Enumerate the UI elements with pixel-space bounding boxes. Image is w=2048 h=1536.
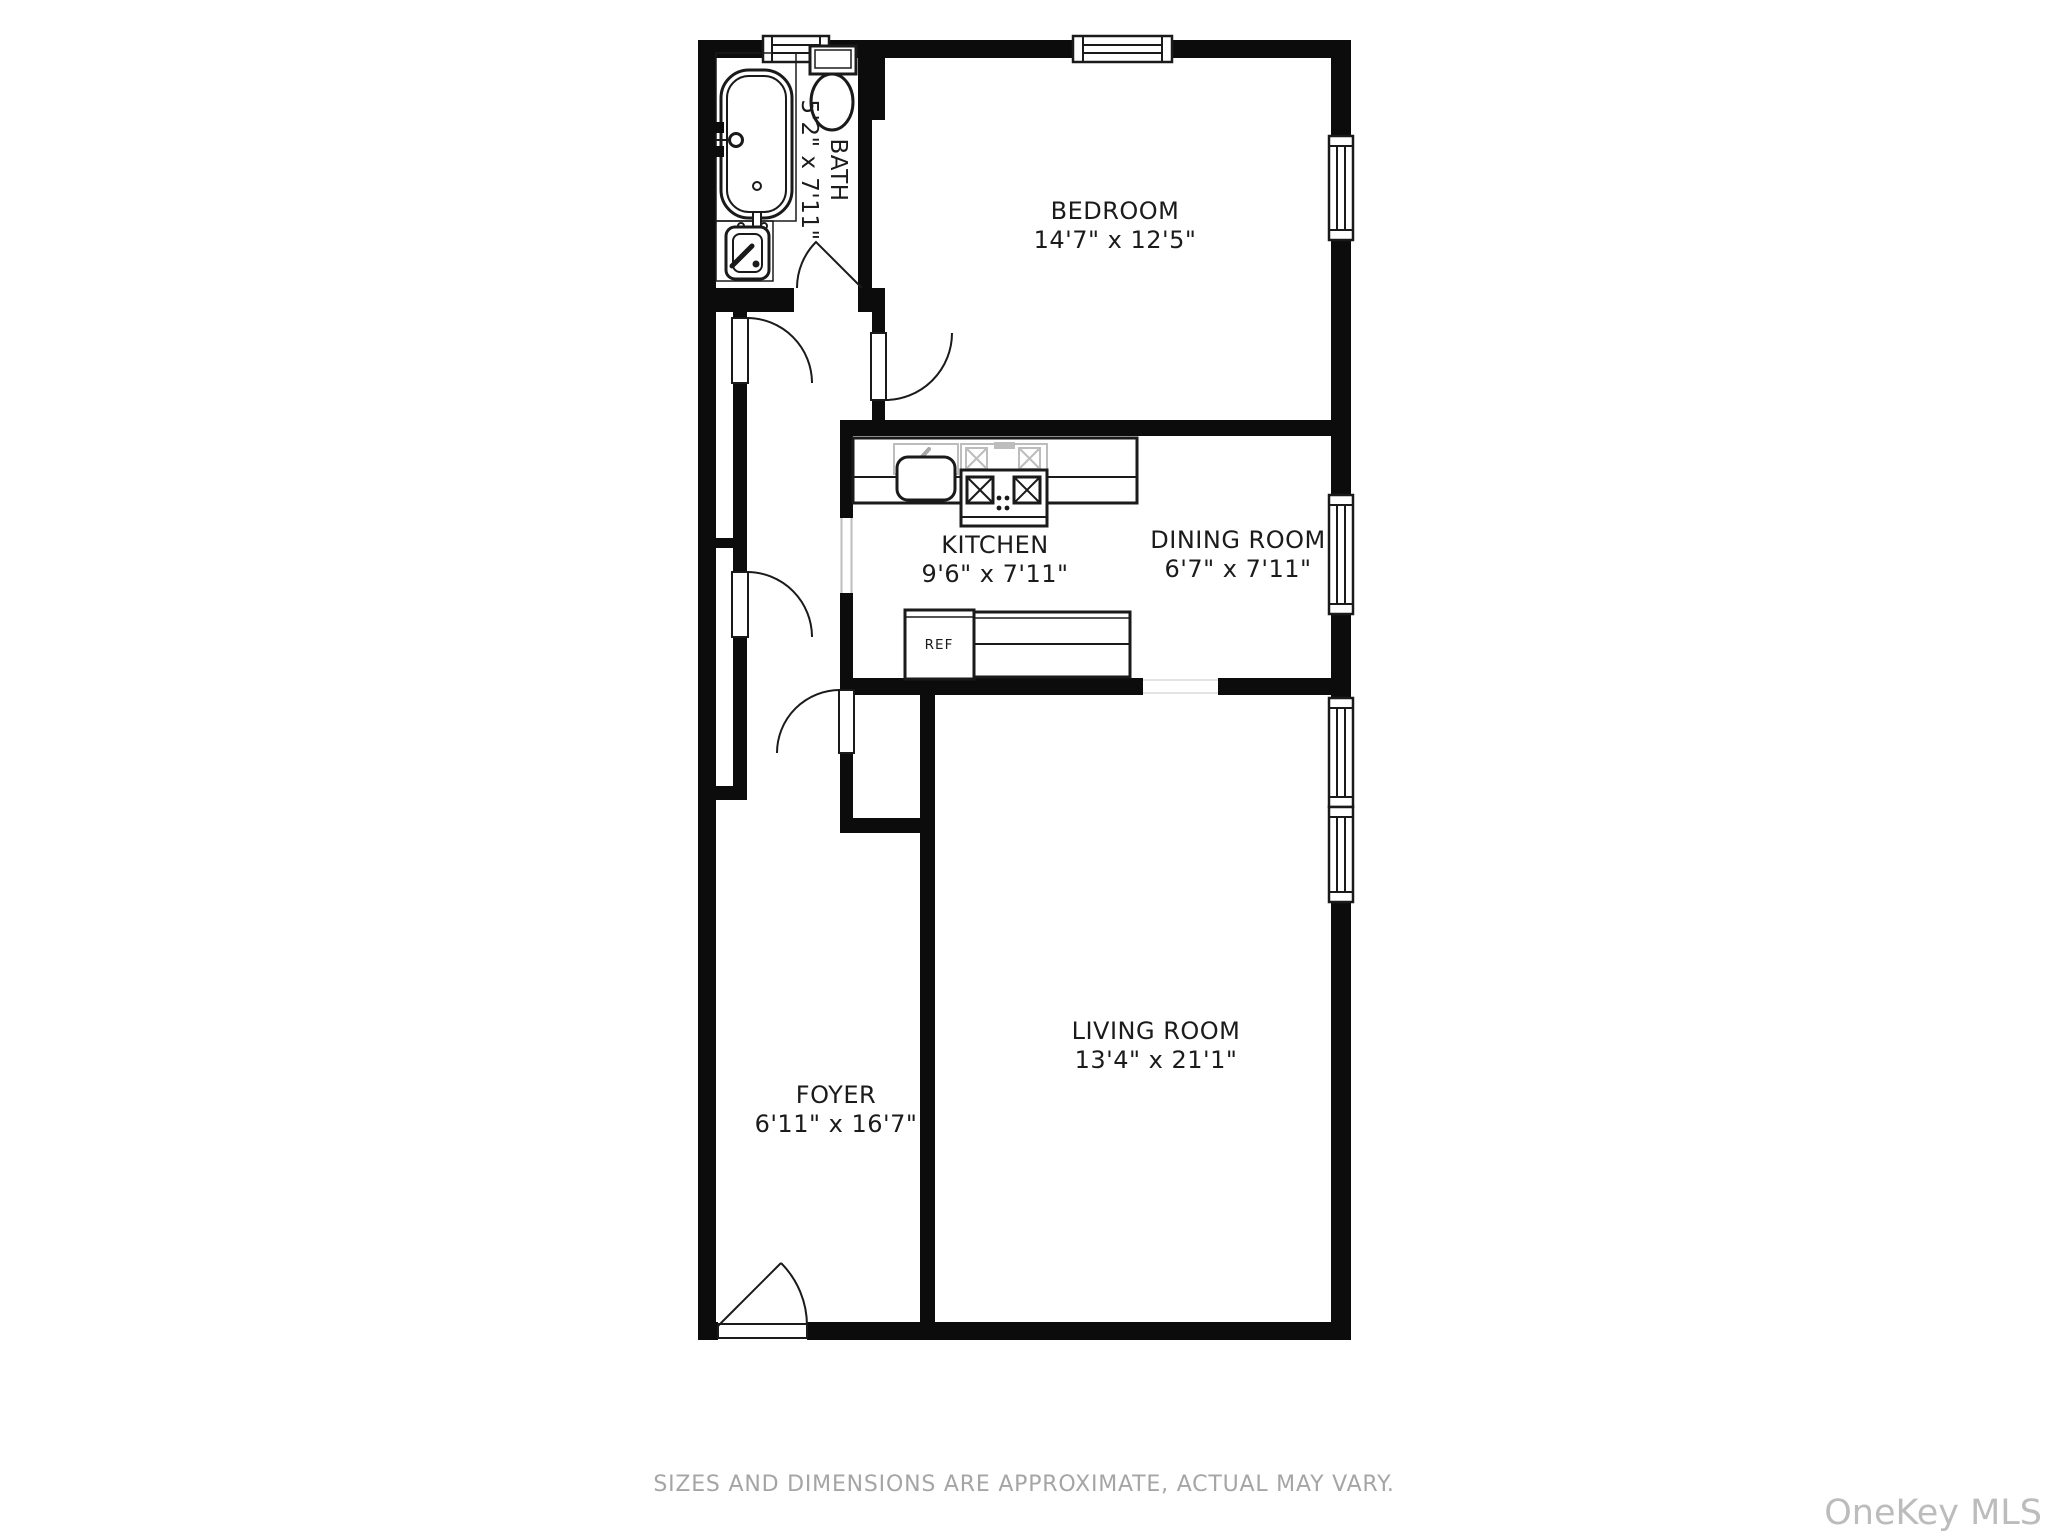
watermark-text: OneKey MLS — [1824, 1493, 2042, 1533]
room-label-dining: DINING ROOM 6'7" x 7'11" — [1150, 526, 1325, 583]
bathroom-sink-icon — [726, 227, 769, 279]
kitchen-dims: 9'6" x 7'11" — [921, 560, 1068, 588]
wall-segment — [733, 548, 747, 572]
foyer-closet-door — [777, 690, 854, 753]
window-bedroom-top — [1073, 36, 1172, 62]
wall-segment — [733, 383, 747, 538]
wall-segment — [840, 593, 853, 690]
bath-door — [797, 242, 862, 288]
wall-segment — [1331, 902, 1351, 1322]
room-label-foyer: FOYER 6'11" x 16'7" — [755, 1081, 918, 1138]
opening-dining-living — [1143, 680, 1218, 693]
refrigerator-label: REF — [925, 637, 954, 653]
wall-segment — [1331, 40, 1351, 136]
cased-opening-kitchen — [842, 518, 852, 593]
wall-segment — [862, 288, 885, 312]
bedroom-dims: 14'7" x 12'5" — [1034, 226, 1197, 254]
room-label-living: LIVING ROOM 13'4" x 21'1" — [1072, 1017, 1241, 1074]
hall-closet-door-lower — [732, 572, 812, 637]
wall-segment — [716, 538, 747, 548]
wall-segment — [1218, 678, 1351, 695]
wall-segment — [698, 40, 763, 58]
bedroom-door — [871, 333, 952, 400]
wall-segment — [858, 40, 872, 312]
wall-segment — [733, 302, 747, 318]
entry-door — [718, 1263, 807, 1338]
dining-dims: 6'7" x 7'11" — [1164, 555, 1311, 583]
foyer-name: FOYER — [796, 1081, 876, 1109]
foyer-dims: 6'11" x 16'7" — [755, 1110, 918, 1138]
wall-segment — [920, 695, 935, 1322]
wall-segment — [698, 786, 747, 800]
disclaimer-text: SIZES AND DIMENSIONS ARE APPROXIMATE, AC… — [653, 1472, 1394, 1497]
bath-name: BATH — [825, 138, 851, 201]
bedroom-name: BEDROOM — [1051, 197, 1180, 225]
doors — [718, 242, 1218, 1338]
dining-name: DINING ROOM — [1150, 526, 1325, 554]
window-living-right-upper — [1329, 698, 1353, 807]
wall-segment — [1172, 40, 1351, 58]
kitchen-counter-lower — [974, 612, 1130, 677]
wall-segment — [840, 420, 853, 518]
wall-segment — [872, 40, 885, 120]
living-name: LIVING ROOM — [1072, 1017, 1241, 1045]
wall-segment — [807, 1322, 1351, 1340]
refrigerator-icon: REF — [905, 610, 974, 679]
bath-dims: 5'2" x 7'11" — [796, 99, 822, 240]
wall-segment — [840, 678, 1143, 695]
wall-segment — [698, 40, 716, 1322]
floor-plan-page: REF — [0, 0, 2048, 1536]
hall-closet-door-upper — [732, 318, 812, 383]
wall-segment — [698, 1322, 718, 1340]
room-label-kitchen: KITCHEN 9'6" x 7'11" — [921, 531, 1068, 588]
window-living-right-lower — [1329, 807, 1353, 902]
wall-segment — [840, 420, 1351, 436]
living-dims: 13'4" x 21'1" — [1075, 1046, 1238, 1074]
bathtub-icon — [721, 70, 792, 230]
window-dining-right — [1329, 495, 1353, 614]
kitchen-name: KITCHEN — [941, 531, 1049, 559]
room-label-bedroom: BEDROOM 14'7" x 12'5" — [1034, 197, 1197, 254]
wall-segment — [1331, 240, 1351, 495]
window-bedroom-right — [1329, 136, 1353, 240]
walls — [698, 40, 1351, 1340]
wall-segment — [733, 637, 747, 786]
floor-plan-svg: REF — [0, 0, 2048, 1536]
